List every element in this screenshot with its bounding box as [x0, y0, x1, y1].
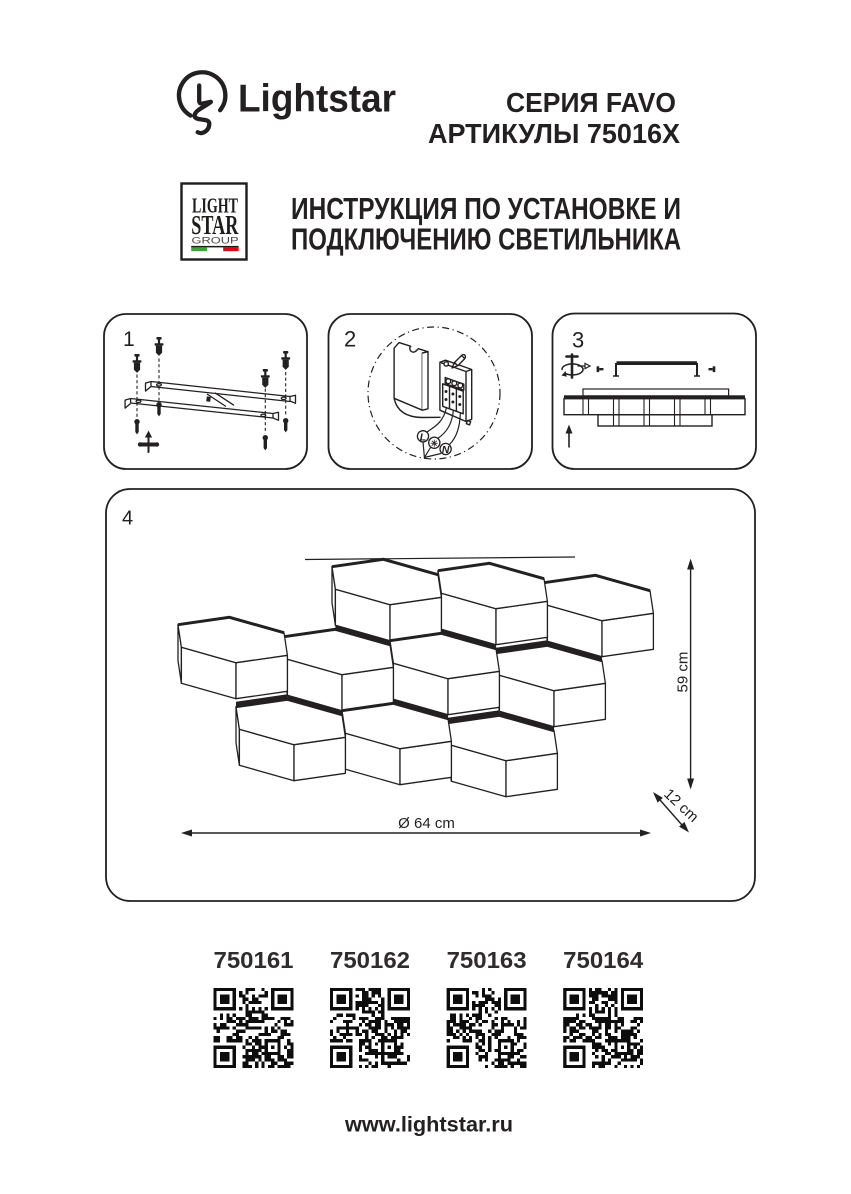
svg-text:Lightstar: Lightstar: [238, 78, 396, 121]
svg-text:750164: 750164: [563, 947, 643, 973]
svg-text:750163: 750163: [447, 947, 527, 973]
svg-text:L: L: [420, 431, 426, 443]
svg-text:2: 2: [344, 327, 356, 352]
svg-text:GROUP: GROUP: [192, 235, 239, 245]
svg-text:ПОДКЛЮЧЕНИЮ СВЕТИЛЬНИКА: ПОДКЛЮЧЕНИЮ СВЕТИЛЬНИКА: [291, 222, 681, 257]
svg-text:АРТИКУЛЫ 75016X: АРТИКУЛЫ 75016X: [428, 118, 681, 149]
svg-text:750161: 750161: [214, 947, 294, 973]
svg-text:N: N: [442, 444, 450, 456]
svg-text:750162: 750162: [330, 947, 410, 973]
svg-text:✳: ✳: [431, 439, 439, 449]
svg-text:Ø 64 cm: Ø 64 cm: [398, 815, 455, 832]
svg-text:3: 3: [572, 327, 584, 352]
svg-text:59 cm: 59 cm: [675, 652, 692, 693]
svg-text:1: 1: [123, 328, 135, 351]
svg-text:4: 4: [122, 508, 133, 530]
svg-text:12 cm: 12 cm: [660, 786, 701, 826]
svg-text:СЕРИЯ FAVO: СЕРИЯ FAVO: [506, 87, 676, 118]
svg-text:www.lightstar.ru: www.lightstar.ru: [344, 1114, 513, 1137]
